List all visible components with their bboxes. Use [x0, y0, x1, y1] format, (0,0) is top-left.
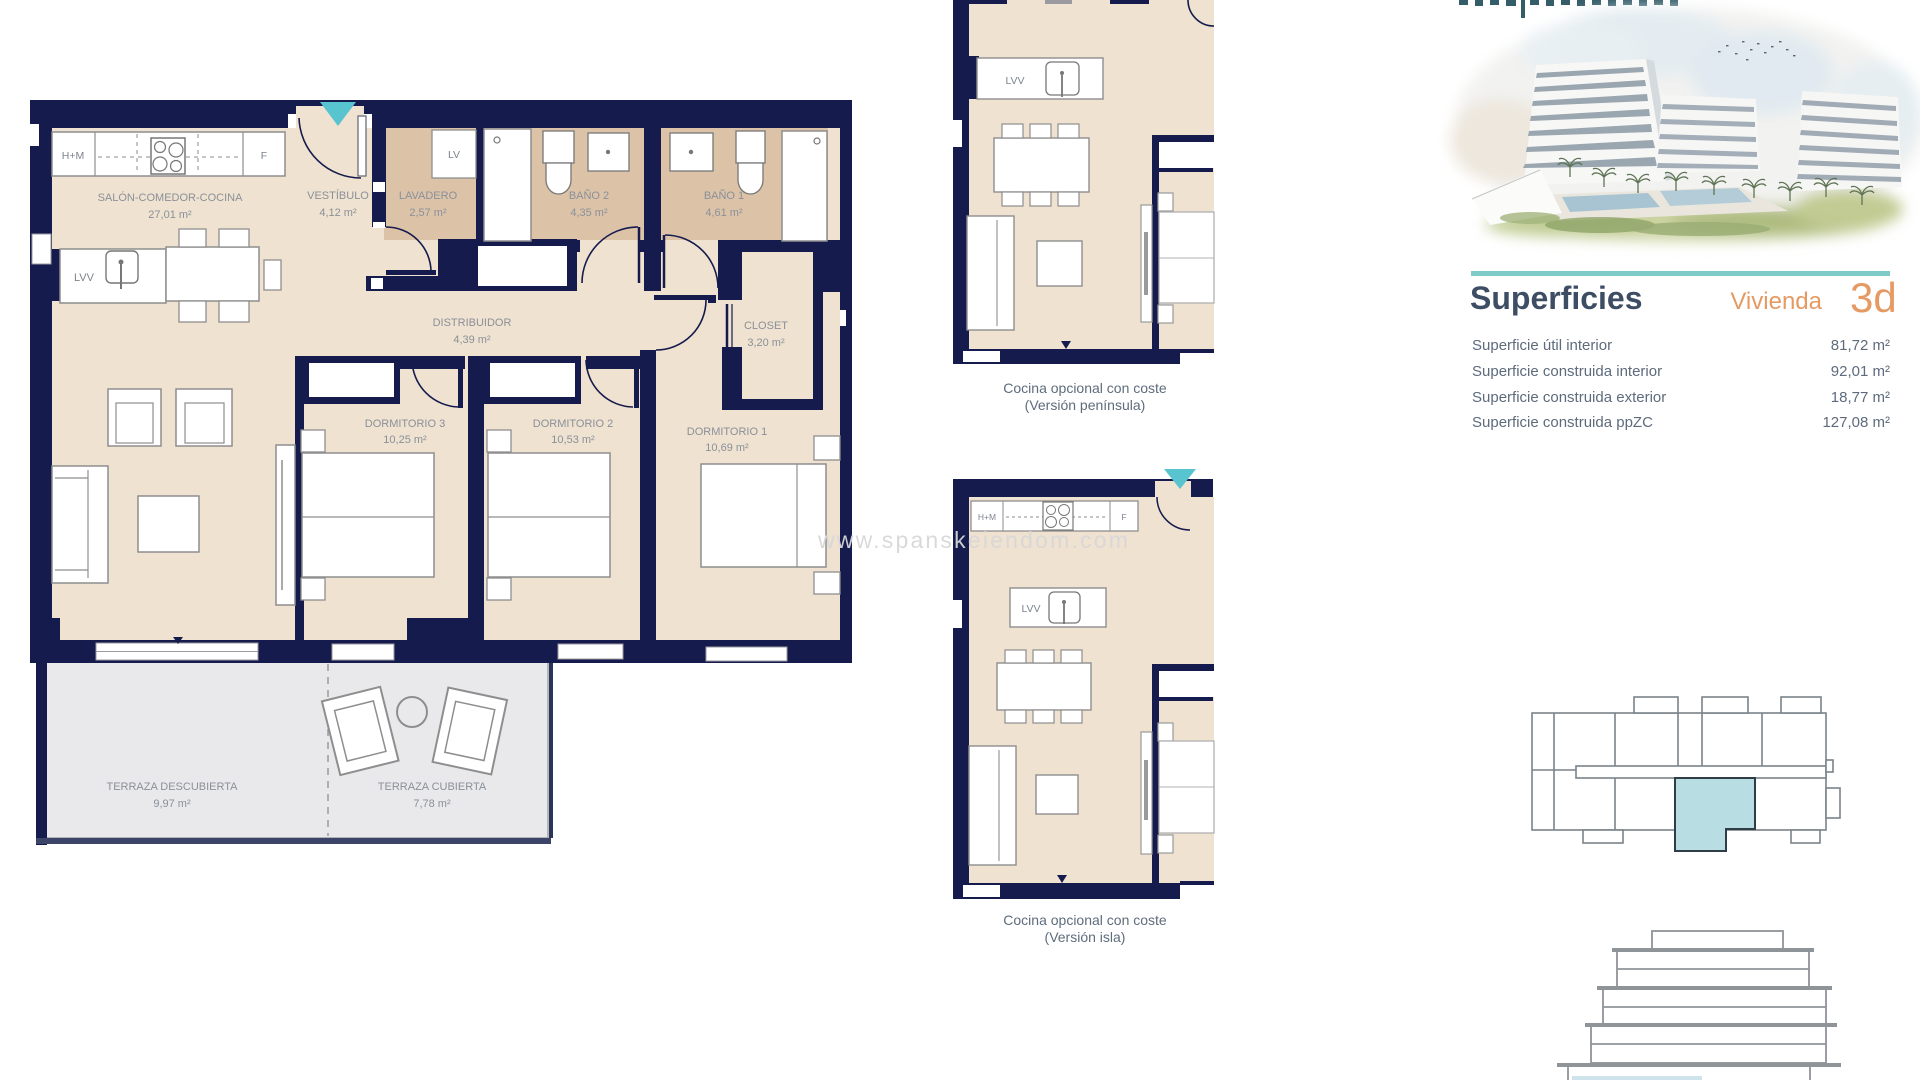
svg-text:www.spanskeiendom.com: www.spanskeiendom.com	[817, 527, 1130, 553]
svg-text:127,08 m²: 127,08 m²	[1822, 414, 1890, 431]
svg-text:4,12 m²: 4,12 m²	[319, 207, 357, 219]
svg-text:27,01 m²: 27,01 m²	[148, 209, 192, 221]
svg-text:DORMITORIO 3: DORMITORIO 3	[365, 418, 445, 430]
svg-text:Superficie construida interior: Superficie construida interior	[1472, 363, 1662, 380]
svg-text:Superficies: Superficies	[1470, 280, 1643, 316]
svg-text:92,01 m²: 92,01 m²	[1831, 363, 1890, 380]
svg-text:TERRAZA DESCUBIERTA: TERRAZA DESCUBIERTA	[106, 781, 238, 793]
svg-text:3d: 3d	[1850, 274, 1897, 321]
svg-text:DORMITORIO 1: DORMITORIO 1	[687, 426, 767, 438]
svg-text:DORMITORIO 2: DORMITORIO 2	[533, 418, 613, 430]
svg-text:TERRAZA CUBIERTA: TERRAZA CUBIERTA	[378, 781, 487, 793]
svg-text:DISTRIBUIDOR: DISTRIBUIDOR	[433, 317, 512, 329]
svg-text:BAÑO 1: BAÑO 1	[704, 189, 744, 202]
svg-text:2,57 m²: 2,57 m²	[409, 207, 447, 219]
svg-text:4,61 m²: 4,61 m²	[705, 207, 743, 219]
svg-text:LVV: LVV	[1021, 603, 1040, 615]
svg-text:Cocina opcional con coste: Cocina opcional con coste	[1003, 912, 1167, 928]
svg-text:9,97 m²: 9,97 m²	[153, 798, 191, 810]
svg-text:Vivienda: Vivienda	[1730, 288, 1822, 315]
svg-text:(Versión isla): (Versión isla)	[1045, 929, 1126, 945]
svg-text:(Versión península): (Versión península)	[1025, 397, 1146, 413]
svg-text:18,77 m²: 18,77 m²	[1831, 389, 1890, 406]
svg-text:LVV: LVV	[74, 272, 95, 284]
svg-text:10,25 m²: 10,25 m²	[383, 434, 427, 446]
svg-text:Superficie construida exterior: Superficie construida exterior	[1472, 389, 1666, 406]
svg-text:LVV: LVV	[1005, 75, 1024, 87]
svg-text:3,20 m²: 3,20 m²	[747, 337, 785, 349]
svg-text:7,78 m²: 7,78 m²	[413, 798, 451, 810]
svg-text:F: F	[261, 150, 267, 162]
svg-text:H+M: H+M	[978, 512, 996, 522]
svg-text:VESTÍBULO: VESTÍBULO	[307, 189, 369, 202]
svg-text:4,39 m²: 4,39 m²	[453, 334, 491, 346]
svg-text:BAÑO 2: BAÑO 2	[569, 189, 609, 202]
svg-text:LV: LV	[448, 149, 460, 161]
svg-text:10,69 m²: 10,69 m²	[705, 442, 749, 454]
svg-text:F: F	[1121, 512, 1126, 522]
svg-text:CLOSET: CLOSET	[744, 320, 788, 332]
svg-text:Cocina opcional con coste: Cocina opcional con coste	[1003, 380, 1167, 396]
svg-text:H+M: H+M	[62, 150, 84, 162]
svg-text:Superficie útil interior: Superficie útil interior	[1472, 337, 1612, 354]
svg-text:81,72 m²: 81,72 m²	[1831, 337, 1890, 354]
svg-text:10,53 m²: 10,53 m²	[551, 434, 595, 446]
svg-text:Superficie construida ppZC: Superficie construida ppZC	[1472, 414, 1653, 431]
svg-text:SALÓN-COMEDOR-COCINA: SALÓN-COMEDOR-COCINA	[98, 191, 244, 204]
svg-text:4,35 m²: 4,35 m²	[570, 207, 608, 219]
svg-text:LAVADERO: LAVADERO	[399, 190, 458, 202]
